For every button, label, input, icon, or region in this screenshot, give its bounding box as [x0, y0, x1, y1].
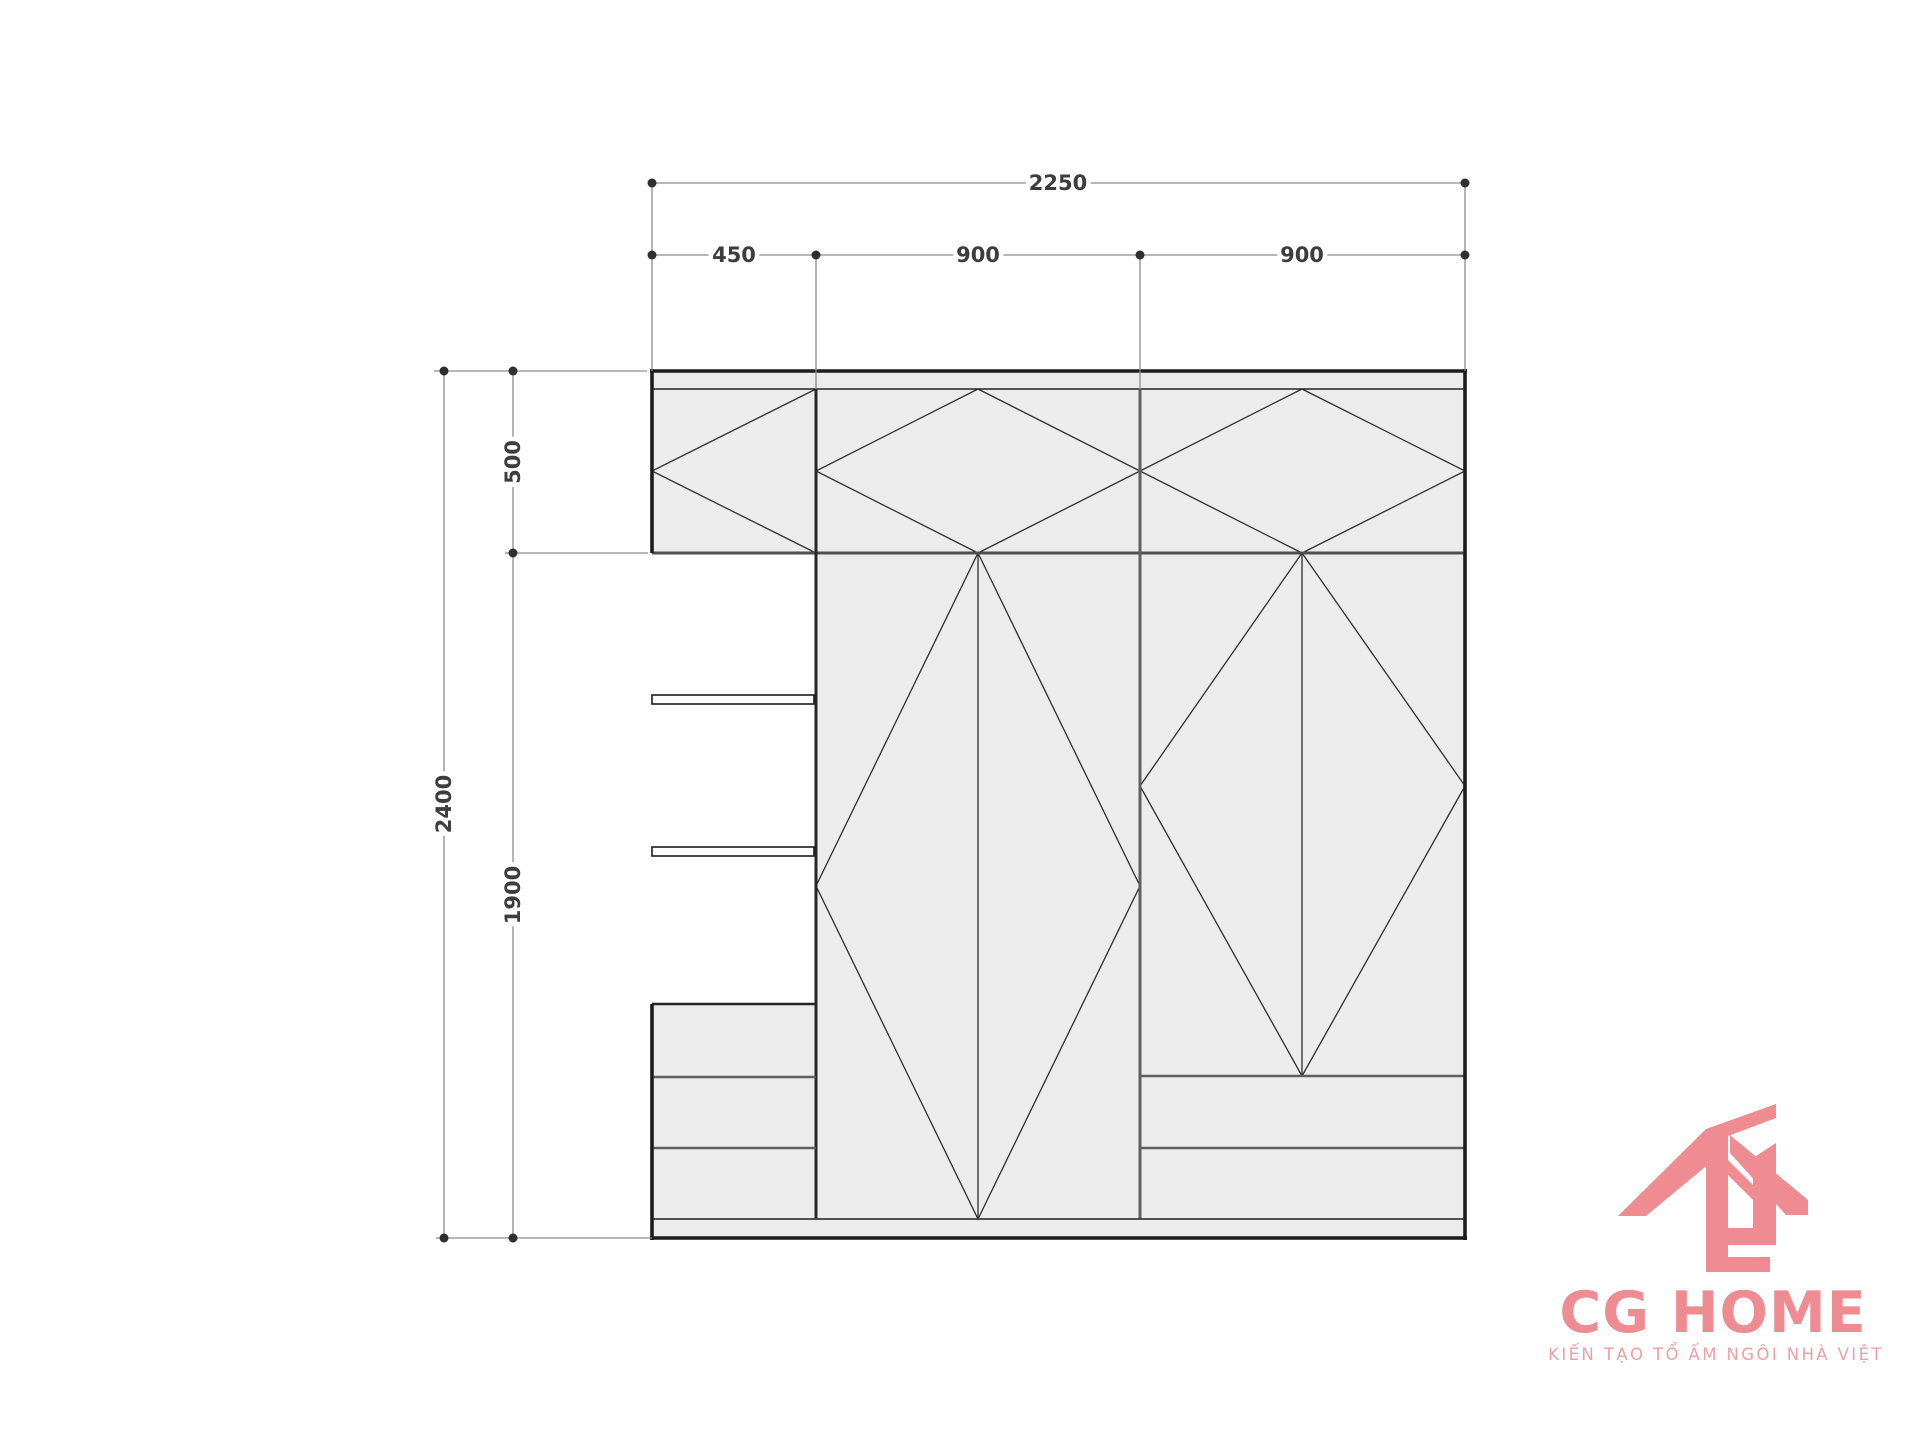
dim-width-segment-1-label: 450: [712, 243, 756, 267]
open-shelf-2: [652, 847, 814, 856]
dim-total-width-label: 2250: [1029, 171, 1087, 195]
dim-height-segment-2-label: 1900: [501, 866, 525, 924]
dim-dot: [648, 251, 657, 260]
dim-height-segment-1-label: 500: [501, 440, 525, 484]
open-shelf-1: [652, 695, 814, 704]
dim-dot: [1461, 251, 1470, 260]
dim-dot: [648, 179, 657, 188]
dim-dot: [812, 251, 821, 260]
dim-dot: [440, 367, 449, 376]
dim-dot: [1461, 179, 1470, 188]
dim-dot: [509, 1234, 518, 1243]
house-base: [1706, 1257, 1770, 1272]
dim-total-height-label: 2400: [432, 775, 456, 833]
cabinet-panels: [651, 371, 1465, 1238]
logo-brand-text: CG HOME: [1559, 1280, 1866, 1346]
dim-width-segment-2-label: 900: [956, 243, 1000, 267]
wardrobe-elevation-svg: 2250 450 900 900 2400 500 1900 CG HOME K…: [0, 0, 1920, 1440]
dim-width-segment-3-label: 900: [1280, 243, 1324, 267]
cg-home-logo: CG HOME KIẾN TẠO TỔ ẤM NGÔI NHÀ VIỆT: [1548, 1104, 1884, 1364]
open-shelf-area: [651, 554, 815, 1003]
dim-dot: [1136, 251, 1145, 260]
dim-dot: [440, 1234, 449, 1243]
drawing-sheet: 2250 450 900 900 2400 500 1900 CG HOME K…: [0, 0, 1920, 1440]
dim-dot: [509, 549, 518, 558]
dim-dot: [509, 367, 518, 376]
house-icon: [1618, 1104, 1808, 1272]
logo-tagline-text: KIẾN TẠO TỔ ẤM NGÔI NHÀ VIỆT: [1548, 1343, 1884, 1364]
